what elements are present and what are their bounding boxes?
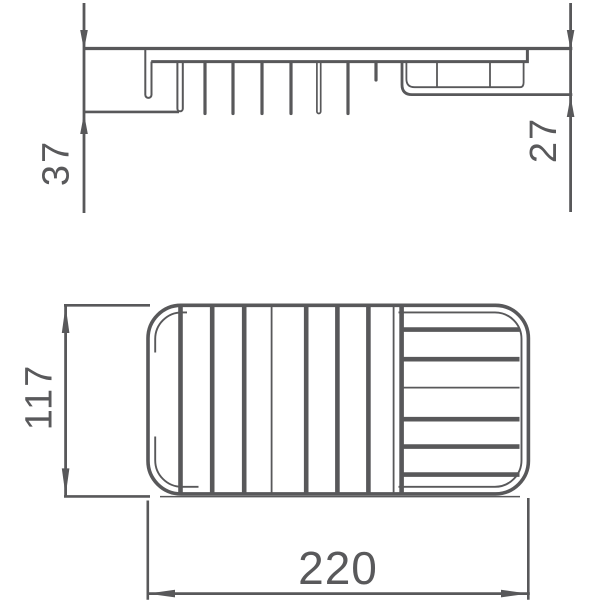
arrowhead-right bbox=[501, 590, 529, 598]
side-second-rail-line bbox=[151, 49, 527, 62]
side-tray-outer-bottom bbox=[402, 62, 572, 95]
arrowhead-up bbox=[80, 114, 88, 134]
arrowhead-up bbox=[62, 306, 70, 333]
dimension-side-height-right: 27 bbox=[523, 3, 574, 212]
dimension-label-height-right: 27 bbox=[523, 117, 565, 163]
dimension-plan-depth: 117 bbox=[19, 304, 151, 497]
dimension-label-height-left: 37 bbox=[36, 140, 78, 186]
plan-tray-inner-frame bbox=[399, 312, 522, 486]
side-tray-inner-frame bbox=[406, 62, 523, 88]
arrowhead-up bbox=[567, 96, 575, 117]
plan-view bbox=[148, 305, 528, 496]
dimension-side-height-left: 37 bbox=[36, 3, 180, 213]
arrowhead-left bbox=[148, 590, 175, 598]
side-view bbox=[83, 49, 572, 114]
plan-inner-rim-bottom-left bbox=[155, 437, 198, 487]
arrowhead-down bbox=[62, 468, 70, 495]
side-wire-loop bbox=[177, 62, 182, 112]
technical-drawing-canvas: 37 27 bbox=[0, 0, 600, 600]
dimension-label-depth: 117 bbox=[19, 364, 61, 431]
side-wire-loop-thin bbox=[317, 62, 321, 114]
dimension-plan-width: 220 bbox=[147, 498, 530, 600]
dimension-label-width: 220 bbox=[298, 542, 378, 594]
side-hook-loop bbox=[145, 49, 151, 98]
technical-drawing-page: 37 27 bbox=[0, 0, 600, 600]
